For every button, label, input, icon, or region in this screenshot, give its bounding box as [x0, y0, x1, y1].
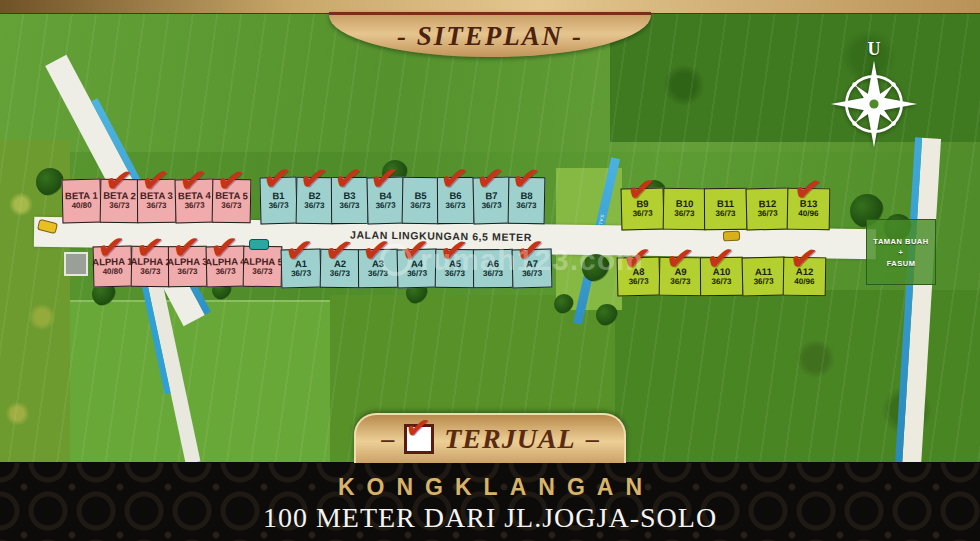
plot-size: 36/73: [252, 267, 272, 276]
facility-line2: +: [899, 248, 904, 257]
sold-check-icon: ✔: [297, 159, 329, 196]
plot-size: 40/80: [72, 202, 92, 211]
sold-check-icon: ✔: [284, 232, 315, 268]
plot-size: 36/73: [215, 267, 235, 276]
sold-check-icon: ✔: [439, 160, 471, 197]
sold-check-icon: ✔: [663, 239, 695, 276]
plot-ALPHA-2: ✔ALPHA 236/73: [130, 246, 170, 288]
compass-north-label: U: [822, 40, 926, 58]
sold-check-icon: ✔: [177, 162, 208, 198]
plot-size: 36/73: [147, 202, 167, 211]
project-name: KONGKLANGAN: [0, 474, 980, 501]
plot-A10: ✔A1036/73: [700, 257, 743, 296]
plot-size: 36/73: [446, 201, 466, 210]
plot-B13: ✔B1340/96: [787, 188, 831, 231]
plot-A9: ✔A936/73: [658, 257, 702, 297]
plot-B3: ✔B336/73: [331, 177, 368, 224]
plot-size: 36/73: [109, 202, 129, 211]
plot-size: 36/73: [375, 201, 395, 210]
car-yellow-right: [723, 231, 741, 242]
plot-BETA-3: ✔BETA 336/73: [137, 179, 176, 223]
plot-size: 36/73: [517, 201, 537, 210]
sold-check-icon: ✔: [787, 239, 819, 276]
sold-check-icon: ✔: [704, 240, 736, 277]
sold-check-icon: ✔: [261, 160, 292, 196]
watermark-text: rumah123.com: [420, 243, 644, 277]
plot-size: 36/73: [674, 210, 694, 219]
plot-ALPHA-1: ✔ALPHA 140/80: [93, 246, 133, 288]
tree-icon: [554, 294, 574, 314]
plot-row-beta: BETA 140/80✔BETA 236/73✔BETA 336/73✔BETA…: [64, 179, 251, 223]
plot-size: 36/73: [753, 277, 773, 286]
plot-A11: A1136/73: [741, 257, 785, 297]
sold-check-icon: ✔: [625, 171, 656, 207]
plot-ALPHA-3: ✔ALPHA 336/73: [168, 246, 207, 287]
plot-size: 36/73: [140, 267, 160, 276]
legend-checkbox: ✔: [404, 424, 434, 454]
sold-check-icon: ✔: [368, 160, 399, 196]
utility-pad: [64, 252, 88, 276]
plot-size: 40/96: [798, 210, 818, 219]
sold-check-icon: ✔: [214, 161, 246, 198]
sold-check-icon: ✔: [332, 160, 364, 197]
tree-icon: [36, 168, 64, 196]
plot-B11: B1136/73: [704, 188, 747, 230]
sold-check-icon: ✔: [139, 162, 171, 199]
facility-taman-buah-fasum: TAMAN BUAH + FASUM: [866, 219, 936, 285]
plot-BETA-4: ✔BETA 436/73: [174, 179, 214, 224]
compass-rose: U: [822, 40, 926, 154]
watermark: rumah123.com: [380, 243, 644, 277]
plot-row-a8-a12: ✔A836/73✔A936/73✔A1036/73A1136/73✔A1240/…: [619, 257, 826, 296]
plot-size: 36/73: [481, 201, 501, 210]
plot-row-alpha: ✔ALPHA 140/80✔ALPHA 236/73✔ALPHA 336/73✔…: [95, 246, 282, 287]
watermark-logo-icon: [380, 244, 412, 276]
plot-size: 36/73: [304, 201, 324, 210]
legend-dash-right: –: [586, 424, 599, 454]
plot-row-b9-b13: ✔B936/73B1036/73B1136/73B1236/73✔B1340/9…: [623, 188, 830, 230]
plot-B10: B1036/73: [662, 188, 706, 231]
plot-B12: B1236/73: [745, 188, 789, 231]
plot-size: 40/80: [103, 267, 123, 276]
plot-B8: ✔B836/73: [508, 177, 546, 225]
siteplan-title: - SITEPLAN -: [397, 21, 583, 52]
plot-B7: ✔B736/73: [472, 177, 510, 225]
plot-B1: ✔B136/73: [260, 177, 298, 225]
plot-size: 36/73: [178, 267, 198, 276]
sold-check-icon: ✔: [322, 231, 354, 268]
plot-size: 36/73: [221, 202, 241, 211]
sold-check-icon: ✔: [170, 229, 202, 266]
plot-B4: ✔B436/73: [366, 177, 404, 225]
facility-line1: TAMAN BUAH: [873, 237, 928, 246]
plot-BETA-5: ✔BETA 536/73: [212, 179, 252, 224]
plot-row-b1-b8: ✔B136/73✔B236/73✔B336/73✔B436/73B536/73✔…: [262, 177, 545, 224]
sold-check-icon: ✔: [102, 161, 134, 198]
plot-B9: ✔B936/73: [621, 188, 665, 231]
sold-check-icon: ✔: [404, 412, 432, 444]
sold-check-icon: ✔: [791, 170, 823, 207]
plot-size: 36/73: [716, 210, 736, 219]
plot-ALPHA-5: ALPHA 536/73: [243, 246, 283, 288]
plot-size: 36/73: [757, 210, 777, 219]
plot-B2: ✔B236/73: [295, 177, 333, 225]
plot-A1: ✔A136/73: [281, 249, 322, 289]
sold-check-icon: ✔: [208, 229, 239, 265]
plot-BETA-2: ✔BETA 236/73: [99, 179, 139, 224]
car-teal-middle: [249, 239, 269, 250]
sold-check-icon: ✔: [474, 160, 505, 196]
plot-B6: ✔B636/73: [437, 177, 474, 224]
plot-ALPHA-4: ✔ALPHA 436/73: [205, 246, 245, 288]
plot-size: 36/73: [269, 201, 289, 210]
sold-check-icon: ✔: [133, 228, 165, 265]
project-location: 100 METER DARI JL.JOGJA-SOLO: [0, 502, 980, 534]
plot-size: 36/73: [340, 201, 360, 210]
plot-A12: ✔A1240/96: [783, 257, 827, 297]
legend-label: TERJUAL: [444, 423, 575, 455]
sold-check-icon: ✔: [510, 159, 542, 196]
plot-BETA-1: BETA 140/80: [62, 179, 102, 224]
plot-B5: B536/73: [402, 177, 440, 225]
plot-size: 36/73: [633, 210, 653, 219]
tree-icon: [596, 304, 618, 326]
plot-size: 36/73: [184, 202, 204, 211]
facility-line3: FASUM: [887, 259, 916, 268]
plot-size: 36/73: [410, 201, 430, 210]
legend-dash-left: –: [381, 424, 394, 454]
sold-check-icon: ✔: [95, 229, 126, 265]
compass-rose-icon: [828, 58, 920, 150]
plot-A2: ✔A236/73: [319, 249, 360, 289]
terjual-legend-banner: – ✔ TERJUAL –: [354, 413, 626, 463]
